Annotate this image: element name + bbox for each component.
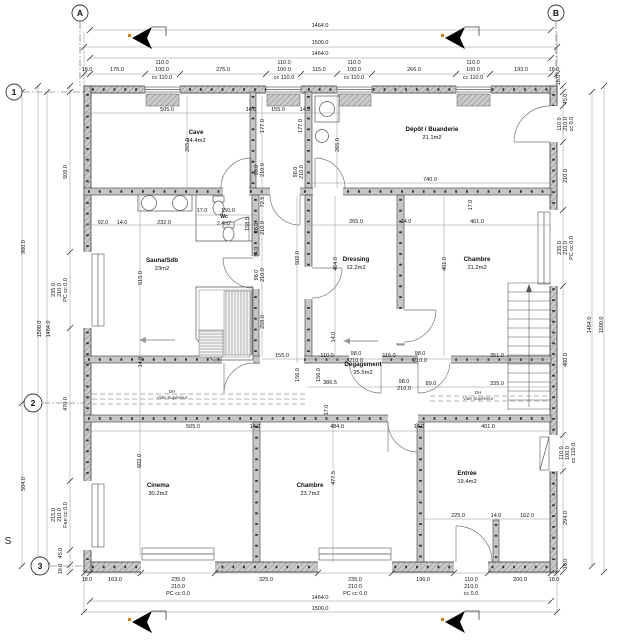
section-arrow-bottom-right (441, 611, 479, 633)
dim-label: 1464.0 (587, 317, 593, 334)
dim-label: 210.0 (413, 358, 427, 364)
dim-label: 210.0 (397, 386, 411, 392)
room-label-area: 19.4m2 (457, 479, 476, 485)
dim-label: 235.0 (171, 577, 185, 583)
french-door-bottom-2 (319, 548, 391, 560)
dim-label: 45.0 (58, 548, 64, 559)
room-label-area: 12.2m2 (346, 265, 365, 271)
section-arrows (128, 27, 479, 633)
dim-label: 470.0 (63, 397, 69, 411)
section-arrow-bottom-left (128, 611, 166, 633)
room-label-name: Dressing (343, 256, 370, 263)
room-label-name: Chambre (464, 256, 491, 263)
grid-marker-label-A: A (77, 8, 83, 18)
dim-label: 259.0 (260, 315, 266, 329)
dim-label: 14.0 (414, 424, 425, 430)
void-above-label: Vide Supérieur (463, 396, 494, 401)
door-chambre-23 (388, 422, 417, 452)
section-arrow-top-right (441, 27, 479, 49)
room-label-area: 21.2m2 (467, 265, 486, 271)
dim-label: 335.0 (490, 381, 504, 387)
french-door-left (92, 254, 104, 326)
dim-label: 89.0 (426, 381, 437, 387)
room-labels: Cave14.4m2Dépôt / Buanderie21.1m2Wc2.4m2… (146, 126, 491, 497)
grid-marker-label-2: 2 (31, 398, 36, 408)
grid-marker-label-1: 1 (12, 87, 17, 97)
stair-direction-arrow (526, 284, 532, 292)
dim-label: Fen cc 0.0 (63, 502, 69, 528)
dim-label: 34.0 (254, 247, 260, 258)
dim-label: 210.0 (260, 221, 266, 235)
window-top-1 (145, 87, 180, 106)
void-above-label: DH (169, 389, 176, 394)
room-label-area: 30.2m2 (148, 491, 167, 497)
dim-label: 960.0 (21, 240, 27, 254)
dim-label: 14.0 (250, 424, 261, 430)
dim-label: 110.0 (155, 60, 168, 66)
room-label-name: Entrée (457, 470, 477, 477)
window-left (92, 484, 104, 547)
grid-marker-label-B: B (553, 8, 559, 18)
dim-label: 18.0 (549, 67, 560, 73)
washing-machine-icon (315, 96, 339, 122)
sink-icon (316, 130, 329, 143)
door-entree (456, 526, 492, 562)
dim-label: 98.0 (399, 379, 410, 385)
dim-label: 502.0 (295, 251, 301, 265)
dim-label: 484.0 (330, 424, 344, 430)
door-depot (315, 158, 345, 188)
dim-label: 325.0 (259, 577, 273, 583)
room-label-name: Dépôt / Buanderie (406, 126, 460, 133)
dim-label: cc 110.0 (571, 443, 577, 463)
room-label-name: Chambre (297, 482, 324, 489)
dim-label: PC cc 0.0 (166, 591, 190, 597)
dim-label: 504.0 (21, 477, 27, 491)
dim-label: 18.0 (82, 577, 93, 583)
french-door-right (538, 212, 550, 284)
dim-label: 1464.0 (312, 23, 329, 29)
dim-label: 72.5 (260, 197, 266, 208)
dim-label: 18.0 (82, 67, 93, 73)
sauna-bench-horizontal (199, 330, 223, 357)
dim-label: 100.0 (155, 67, 169, 73)
room-label-area: 14.4m2 (186, 138, 205, 144)
dim-label: 17.0 (197, 208, 208, 214)
compass-label: S (5, 536, 12, 547)
grid-marker-label-3: 3 (38, 561, 43, 571)
dim-label: 210.0 (260, 268, 266, 282)
dim-label: 17.0 (468, 200, 474, 211)
dim-label: 210.0 (464, 584, 478, 590)
dim-label: 265.0 (349, 219, 363, 225)
window-right (540, 437, 549, 470)
door-degagement-2 (418, 363, 450, 393)
dim-label: PC cc 0.0 (569, 236, 575, 260)
dim-label: PC cc 0.0 (343, 591, 367, 597)
dim-label: 210.0 (171, 584, 185, 590)
sink-icon (173, 196, 188, 211)
dim-label: 100.0 (347, 67, 361, 73)
room-label-name: Cave (189, 129, 204, 136)
dim-label: 110.0 (347, 60, 360, 66)
dim-label: 18.0 (556, 75, 562, 86)
dim-label: 17.0 (324, 405, 330, 416)
dim-label: 401.0 (481, 424, 495, 430)
dim-label: 175.0 (110, 67, 124, 73)
dimension-lines (19, 27, 607, 615)
dim-label: 14.0 (401, 219, 412, 225)
compass: S (5, 536, 12, 547)
dim-label: 1464.0 (312, 595, 329, 601)
dim-label: 196.0 (416, 577, 430, 583)
door-chambre-21 (404, 310, 436, 342)
dim-label: 210.0 (348, 584, 362, 590)
dim-label: cc 110.0 (344, 75, 364, 81)
dim-label: 177.0 (298, 119, 304, 133)
dim-label: 505.0 (186, 424, 200, 430)
dim-label: 1464.0 (46, 321, 52, 338)
room-label-area: 25.5m2 (353, 370, 372, 376)
dim-label: 386.5 (323, 380, 337, 386)
dim-label: 200.0 (513, 577, 527, 583)
room-label-name: Sauna/Sdb (146, 257, 178, 264)
dim-label: 461.0 (470, 219, 484, 225)
exterior-walls (84, 86, 557, 572)
dim-label: 110.0 (277, 60, 290, 66)
dim-label: 100.0 (466, 67, 480, 73)
dim-label: cc 0.0 (464, 591, 479, 597)
dim-label: 1500.0 (599, 317, 605, 334)
dim-label: cc 110.0 (152, 75, 172, 81)
door-right-top (514, 106, 550, 142)
doors (221, 106, 550, 562)
dim-label: 18.0 (58, 564, 64, 575)
dim-label: 14.0 (491, 513, 502, 519)
dim-label: 14.0 (117, 220, 128, 226)
stairs (508, 283, 551, 410)
dim-label: 158.5 (245, 217, 251, 231)
dim-label: 509.0 (63, 165, 69, 179)
void-above-label: DH (475, 390, 482, 395)
dim-label: 98.0 (351, 351, 362, 357)
dim-label: 225.0 (451, 513, 465, 519)
dim-label: cc 110.0 (463, 75, 483, 81)
dim-label: 98.0 (415, 351, 426, 357)
dim-label: 92.0 (98, 220, 109, 226)
dim-label: PC cc 0.0 (63, 278, 69, 302)
dim-label: 351.0 (490, 353, 504, 359)
room-label-name: Dégagement (344, 361, 381, 368)
dim-label: 156.0 (316, 368, 322, 382)
dim-label: 210.0 (299, 165, 305, 179)
dim-label: 14.0 (331, 332, 337, 343)
dim-label: 110.0 (320, 353, 333, 359)
dim-label: 110.0 (466, 60, 479, 66)
dim-label: 18.0 (549, 577, 560, 583)
dim-label: 1464.0 (312, 51, 329, 57)
dim-label: 100.0 (277, 67, 291, 73)
dim-label: 155.0 (275, 353, 289, 359)
dim-label: 162.0 (520, 513, 534, 519)
sauna-bench-vertical (224, 291, 251, 355)
dim-label: 193.0 (514, 67, 528, 73)
dim-label: 115.0 (382, 353, 395, 359)
window-top-4 (456, 87, 491, 106)
french-door-bottom-1 (142, 548, 214, 560)
void-above-label: Vide Supérieur (157, 395, 188, 400)
dim-label: 177.0 (260, 119, 266, 133)
door-corridor-top (270, 195, 300, 225)
dim-label: 515.0 (138, 271, 144, 285)
dim-label: cc 0.0 (569, 117, 575, 132)
dim-label: cc 110.0 (274, 75, 294, 81)
floor-plan-drawing: AB123 1464.01500.01464.018.0175.0110.010… (0, 0, 626, 640)
dim-label: 156.0 (295, 368, 301, 382)
dim-label: 14.0 (246, 107, 257, 113)
window-top-3 (337, 87, 372, 106)
dim-label: 265.0 (335, 138, 341, 152)
room-label-area: 23.7m2 (300, 491, 319, 497)
dim-label: 461.0 (442, 257, 448, 271)
sink-icon (142, 196, 157, 211)
door-cave (221, 158, 251, 188)
dim-label: 505.0 (160, 107, 174, 113)
dim-label: 210.0 (563, 169, 569, 183)
dim-label: 1500.0 (312, 40, 329, 46)
section-arrow-top-left (128, 27, 166, 49)
door-dressing (312, 268, 342, 298)
dim-label: 163.0 (108, 577, 122, 583)
dim-label: 45.0 (563, 94, 569, 105)
room-label-area: 2.4m2 (217, 221, 231, 227)
dim-label: 110.0 (464, 577, 477, 583)
dim-label: 602.0 (137, 454, 143, 468)
room-label-name: Wc (220, 214, 228, 220)
dim-label: 740.0 (423, 177, 437, 183)
dim-label: 155.0 (271, 107, 285, 113)
dim-label: 477.5 (331, 471, 337, 485)
dim-label: 232.0 (157, 220, 171, 226)
door-sauna (223, 258, 253, 288)
dim-label: 18.0 (563, 559, 569, 570)
dim-label: 210.0 (260, 163, 266, 177)
room-label-name: Cinema (147, 482, 170, 489)
dim-label: 115.0 (312, 67, 325, 73)
dim-label: 275.0 (216, 67, 230, 73)
floor-plan-canvas: AB123 1464.01500.01464.018.0175.0110.010… (0, 0, 626, 640)
windows (92, 87, 550, 560)
room-label-area: 23m2 (155, 266, 170, 272)
dim-label: 460.0 (563, 353, 569, 367)
window-top-2 (266, 87, 301, 106)
dimension-labels: 1464.01500.01464.018.0175.0110.0100.0cc … (21, 23, 605, 612)
dim-label: 1500.0 (312, 606, 329, 612)
room-label-area: 21.1m2 (422, 135, 441, 141)
dim-label: 294.0 (563, 511, 569, 525)
door-degagement-left (224, 363, 254, 393)
dim-label: 14.0 (138, 357, 144, 368)
dim-label: 266.0 (407, 67, 421, 73)
dim-label: 1500.0 (37, 321, 43, 338)
dim-label: 464.0 (333, 257, 339, 271)
sauna-cabin (196, 287, 253, 360)
dim-label: 235.0 (348, 577, 362, 583)
dim-label: 14.0 (300, 107, 311, 113)
